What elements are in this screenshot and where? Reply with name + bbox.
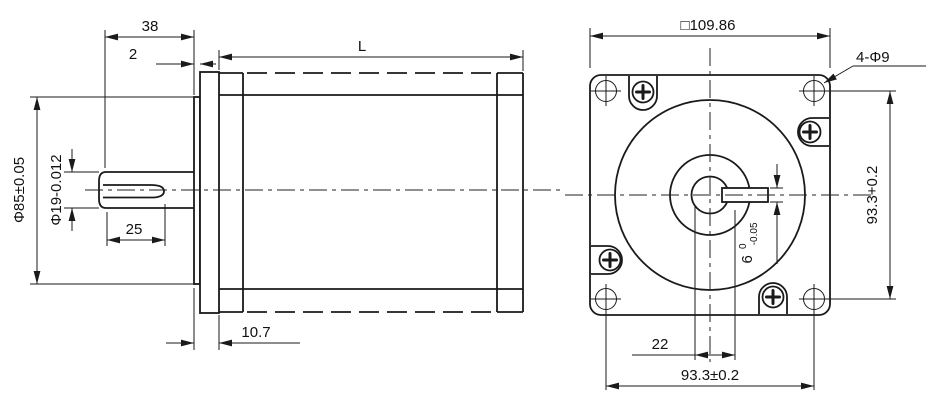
- drawing-canvas: 38 2 L Φ85±0.05 Φ19-0.012: [0, 0, 929, 402]
- cover-screw-right: [800, 122, 821, 143]
- shaft-flat: [103, 185, 164, 198]
- cover-screw-left: [600, 250, 621, 271]
- cover-screw-bottom: [763, 287, 784, 308]
- dim-38-label: 38: [142, 18, 159, 35]
- dim-10-7-label: 10.7: [241, 324, 270, 341]
- dim-6-lower-tolerance: -0.05: [749, 222, 760, 245]
- dim-body-length: L: [219, 38, 523, 71]
- dim-4-phi9-label: 4-Φ9: [856, 49, 890, 66]
- dim-flange-thickness: 10.7: [166, 288, 300, 350]
- dim-phi19-label: Φ19-0.012: [48, 154, 65, 225]
- dim-6-main: 6: [739, 255, 756, 263]
- side-view: 38 2 L Φ85±0.05 Φ19-0.012: [11, 18, 565, 350]
- dim-shaft-extension: 38: [105, 18, 194, 168]
- cover-screw-top: [633, 82, 654, 103]
- motor-shaft: [99, 172, 194, 208]
- motor-outline-drawing: 38 2 L Φ85±0.05 Φ19-0.012: [0, 0, 929, 402]
- dim-2-label: 2: [129, 46, 137, 63]
- dim-93-3-vertical-label: 93.3+0.2: [864, 166, 881, 225]
- dim-square-label: □109.86: [681, 17, 736, 34]
- dim-mounting-holes: 4-Φ9: [824, 49, 926, 83]
- dim-22-label: 22: [652, 336, 669, 353]
- dim-6-upper-tolerance: 0: [738, 243, 749, 249]
- dim-93-3-horizontal-label: 93.3±0.2: [681, 367, 739, 384]
- front-view: □109.86 4-Φ9 93.3+0.2 22 93.3±0.2: [565, 17, 926, 390]
- dim-phi85-label: Φ85±0.05: [11, 157, 28, 223]
- dim-25-label: 25: [126, 221, 143, 238]
- dim-flat-length: 25: [107, 204, 165, 246]
- dim-L-label: L: [358, 38, 366, 55]
- mounting-flange: [200, 72, 219, 313]
- motor-body: [219, 73, 523, 312]
- dim-boss-thickness: 2: [129, 46, 216, 64]
